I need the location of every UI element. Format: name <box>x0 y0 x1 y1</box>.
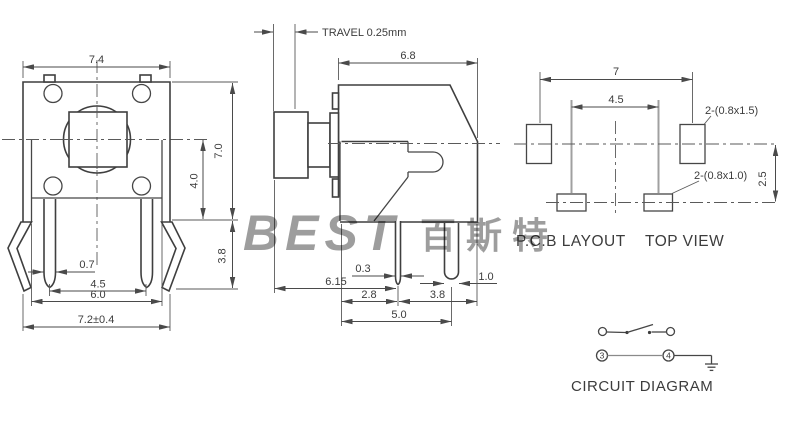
circuit-pin4-label: 4 <box>666 351 671 361</box>
side-tab-top <box>333 93 339 109</box>
dim-side-front-to-pin: 2.8 <box>361 289 376 301</box>
front-pin-right <box>141 199 153 288</box>
dim-front-leg-height: 3.8 <box>217 248 229 263</box>
dim-side-pin-to-back: 3.8 <box>430 289 445 301</box>
circuit-diagram: 3 4 CIRCUIT DIAGRAM <box>571 325 718 396</box>
front-rivet-bottom-left <box>44 177 62 195</box>
dim-front-height: 7.0 <box>213 143 225 158</box>
circuit-pin3-label: 3 <box>600 351 605 361</box>
front-rivet-top-left <box>44 85 62 103</box>
watermark-cjk-text: 百斯特 <box>420 215 558 256</box>
dim-side-base: 5.0 <box>391 309 406 321</box>
pcb-pad-big-label: 2-(0.8x1.5) <box>705 105 758 117</box>
circuit-caption: CIRCUIT DIAGRAM <box>571 378 713 395</box>
watermark-best-logo: BEST <box>243 205 400 261</box>
side-stem <box>308 123 330 167</box>
front-rivet-top-right <box>133 85 151 103</box>
dim-front-pin-width: 0.7 <box>79 259 94 271</box>
side-frame <box>330 113 339 177</box>
front-leg-left <box>8 222 32 291</box>
front-leg-right <box>162 222 186 291</box>
circuit-terminal-left-icon <box>599 328 607 336</box>
dim-front-width: 7.4 <box>89 54 104 66</box>
side-view: TRAVEL 0.25mm 6.8 0.3 1.0 <box>254 24 500 326</box>
front-top-tab-left <box>44 75 55 82</box>
side-button <box>274 112 308 178</box>
dim-pcb-row-gap: 2.5 <box>757 171 769 186</box>
circuit-terminal-right-icon <box>667 328 675 336</box>
dim-side-pin-width: 0.3 <box>355 263 370 275</box>
pcb-pad-small-label: 2-(0.8x1.0) <box>694 170 747 182</box>
dim-front-bracket-width: 6.0 <box>90 289 105 301</box>
dim-pcb-pitch: 7 <box>613 66 619 78</box>
dim-front-center-to-base: 4.0 <box>189 173 201 188</box>
dim-side-leg-width: 1.0 <box>478 271 493 283</box>
front-pin-left <box>44 199 56 288</box>
front-top-tab-right <box>140 75 151 82</box>
side-slot <box>408 152 443 172</box>
dim-side-depth: 6.8 <box>400 50 415 62</box>
pcb-caption-topview: TOP VIEW <box>645 233 724 250</box>
side-tab-bottom <box>333 179 339 197</box>
drawing-canvas: 7.4 0.7 4.5 6.0 7.2±0.4 4.0 7.0 3.8 <box>0 0 785 432</box>
front-view: 7.4 0.7 4.5 6.0 7.2±0.4 4.0 7.0 3.8 <box>2 54 238 331</box>
tact-switch-drawing: 7.4 0.7 4.5 6.0 7.2±0.4 4.0 7.0 3.8 <box>0 0 785 432</box>
circuit-contact-dot-right <box>648 331 651 334</box>
dim-front-base-width: 7.2±0.4 <box>78 314 115 326</box>
dim-pcb-inner-pitch: 4.5 <box>608 94 623 106</box>
side-body-outline <box>339 85 478 222</box>
ground-icon <box>705 356 718 371</box>
front-rivet-bottom-right <box>133 177 151 195</box>
dim-side-button-to-pin: 6.15 <box>325 276 346 288</box>
travel-label: TRAVEL 0.25mm <box>322 27 406 39</box>
